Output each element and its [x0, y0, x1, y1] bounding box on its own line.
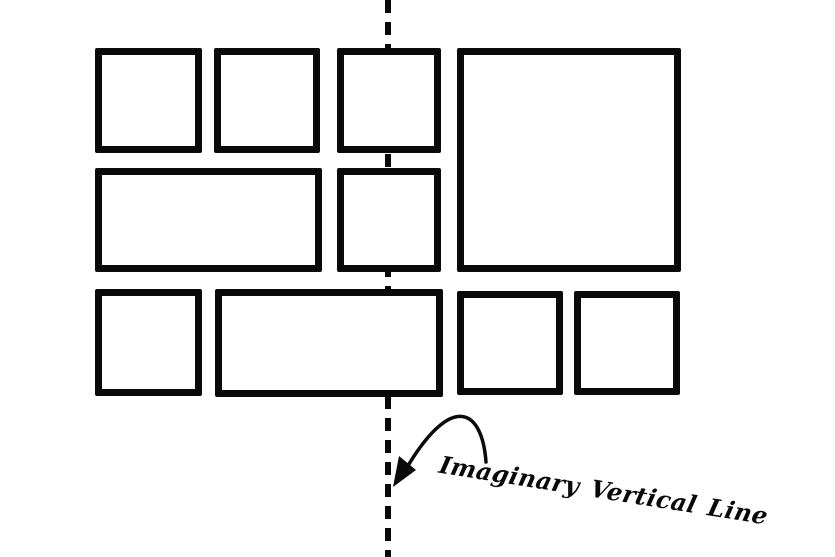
row2-box-2: [337, 168, 441, 272]
row1-box-3: [337, 48, 441, 153]
row3-box-1: [95, 289, 202, 396]
row1-box-1: [95, 48, 202, 153]
row2-wide-box: [95, 168, 322, 272]
diagram-canvas: Imaginary Vertical Line: [0, 0, 835, 557]
imaginary-vertical-line-label: Imaginary Vertical Line: [436, 450, 709, 521]
row3-wide-box: [215, 289, 443, 397]
row3-box-3: [457, 291, 563, 395]
row1-box-2: [214, 48, 320, 153]
arrowhead-icon: [393, 456, 416, 487]
right-large-box: [457, 48, 681, 272]
row3-box-4: [574, 291, 680, 395]
